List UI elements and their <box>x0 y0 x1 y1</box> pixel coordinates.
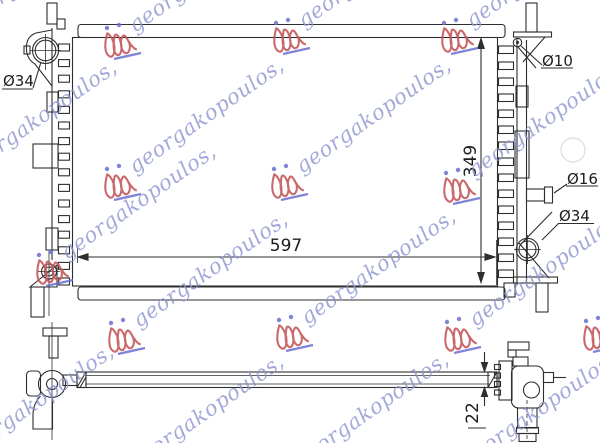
watermark-logo-accent <box>121 318 125 322</box>
watermark-logo <box>107 325 141 353</box>
top-view <box>27 322 567 442</box>
watermark-logo <box>275 322 309 350</box>
bottom-tank-bar <box>78 287 505 300</box>
technical-drawing-canvas: Ø34 Ø10 Ø16 Ø34 597 349 22 georgakopoulo… <box>0 0 600 443</box>
watermark-logo-accent <box>454 18 458 22</box>
dim-label-core-depth: 22 <box>463 402 483 424</box>
watermark-logo-accent <box>445 320 449 324</box>
right-tank <box>515 38 529 285</box>
watermark-logo-accent <box>105 167 109 171</box>
watermark-logo <box>270 171 304 199</box>
watermark-logo-accent <box>49 250 53 254</box>
watermark-logo <box>35 257 69 285</box>
watermark-text: georgakopoulos, <box>461 0 600 32</box>
watermark-logo-accent <box>289 315 293 319</box>
watermark-text: georgakopoulos, <box>124 349 288 443</box>
port-label-top-left: Ø34 <box>3 72 34 90</box>
watermark-logo-accent <box>105 26 109 30</box>
port-label-bottom-right: Ø34 <box>559 207 590 225</box>
watermark-logo-accent <box>444 171 448 175</box>
watermark-logo-accent <box>37 253 41 257</box>
watermark-logo-accent <box>284 164 288 168</box>
watermark-logo-accent <box>596 316 600 320</box>
watermark-logo <box>272 25 306 53</box>
watermark-logo-accent <box>277 318 281 322</box>
watermark-logo <box>103 30 137 58</box>
right-end-cap <box>488 372 497 388</box>
watermark-text: georgakopoulos, <box>289 347 453 443</box>
watermark-logo-accent <box>274 21 278 25</box>
watermark-text: georgakopoulos, <box>293 0 457 32</box>
port-label-top-right: Ø10 <box>542 52 573 70</box>
watermark-logo <box>582 323 600 351</box>
watermark-text: georgakopoulos, <box>291 53 455 178</box>
watermark-logo-accent <box>286 18 290 22</box>
watermark-text: georgakopoulos, <box>463 57 600 182</box>
watermark-text: georgakopoulos, <box>0 339 118 443</box>
watermark-logo-accent <box>584 319 588 323</box>
fitting-label-right: Ø16 <box>567 170 598 188</box>
watermark-logo-accent <box>442 21 446 25</box>
watermark-text: georgakopoulos, <box>296 204 460 329</box>
watermark-logo-accent <box>456 168 460 172</box>
watermark-logo-accent <box>117 164 121 168</box>
watermark-text: georgakopoulos, <box>0 0 121 32</box>
watermark-logo <box>440 25 474 53</box>
watermark-text: georgakopoulos, <box>128 207 292 332</box>
watermark-logo-accent <box>457 317 461 321</box>
stamp-mark <box>561 138 585 162</box>
watermark-text: georgakopoulos, <box>124 0 288 37</box>
watermark-logo-accent <box>272 167 276 171</box>
watermark-logo <box>442 175 476 203</box>
watermark-logo-accent <box>109 321 113 325</box>
watermark-logo-accent <box>117 23 121 27</box>
watermark-logo <box>443 324 477 352</box>
